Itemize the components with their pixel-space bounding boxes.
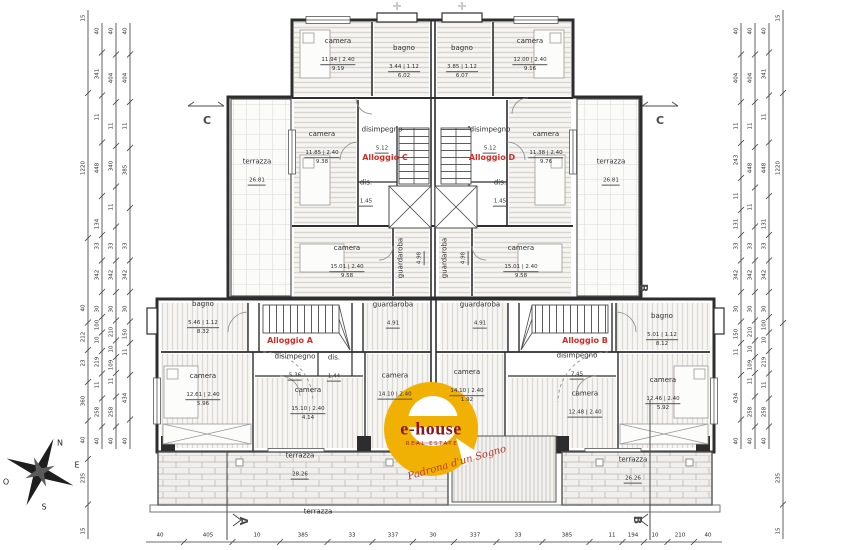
architectural-floor-plan-page: e-house REAL ESTATE Padrona d'un Sogno N… — [0, 0, 850, 550]
logo-tagline: REAL ESTATE — [406, 441, 458, 447]
compass-west-label: O — [3, 478, 9, 487]
compass-south-label: S — [41, 503, 46, 512]
compass-north-label: N — [57, 439, 63, 448]
compass-east-label: E — [74, 461, 79, 470]
logo-name: e-house — [400, 419, 462, 440]
upper-floor-block — [228, 2, 641, 298]
